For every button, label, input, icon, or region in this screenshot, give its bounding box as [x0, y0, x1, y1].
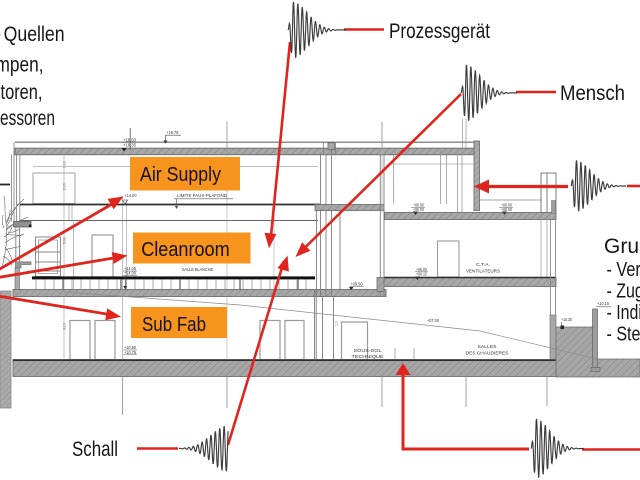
svg-text:- Verkehr: - Verkehr	[607, 259, 640, 281]
svg-text:+10.30: +10.30	[561, 317, 573, 322]
svg-text:toren,: toren,	[1, 80, 43, 104]
svg-text:mpen,: mpen,	[0, 53, 44, 77]
svg-text:+18.78: +18.78	[166, 130, 179, 135]
svg-text:essoren: essoren	[0, 106, 55, 130]
svg-text:Grundla: Grundla	[604, 235, 640, 258]
svg-text:+18.35: +18.35	[123, 142, 137, 147]
svg-text:+06.15: +06.15	[416, 271, 428, 276]
svg-text:3.10: 3.10	[63, 323, 67, 330]
svg-text:- Indirekt: - Indirekt	[607, 302, 640, 324]
svg-text:- Steuerung: - Steuerung	[607, 324, 640, 346]
svg-text:DES CHAUDIERES: DES CHAUDIERES	[466, 351, 509, 356]
svg-text:SALLES: SALLES	[478, 344, 497, 349]
svg-text:1.0: 1.0	[335, 321, 339, 326]
svg-text:Prozessgerät: Prozessgerät	[389, 19, 490, 43]
svg-text:+07.00: +07.00	[427, 318, 440, 323]
svg-text:Air Supply: Air Supply	[140, 163, 222, 186]
svg-text:+06.00: +06.00	[501, 207, 513, 212]
svg-text:LIMITE FAUX-PLAFOND: LIMITE FAUX-PLAFOND	[177, 193, 227, 198]
svg-text:+06.00: +06.00	[413, 207, 425, 212]
svg-text:Cleanroom: Cleanroom	[141, 238, 230, 261]
svg-text:2.00: 2.00	[63, 183, 67, 190]
svg-text:SOUS-SOL: SOUS-SOL	[354, 348, 383, 353]
svg-text:e: e	[0, 22, 1, 46]
svg-text:+14.00: +14.00	[124, 271, 137, 276]
svg-text:7.10: 7.10	[63, 161, 67, 168]
svg-text:C.T.A.: C.T.A.	[476, 262, 490, 267]
svg-text:+10.75: +10.75	[124, 350, 137, 355]
svg-text:Mensch: Mensch	[560, 81, 625, 105]
svg-text:TECHNIQUE: TECHNIQUE	[352, 354, 384, 359]
svg-text:+14.00: +14.00	[125, 193, 138, 198]
svg-text:Sub Fab: Sub Fab	[142, 313, 206, 336]
svg-text:- Zugang: - Zugang	[607, 281, 640, 303]
svg-text:+09.50: +09.50	[351, 282, 364, 287]
svg-text:Quellen: Quellen	[4, 22, 65, 46]
svg-text:VENTILATEURS: VENTILATEURS	[466, 269, 500, 274]
svg-text:Schall: Schall	[72, 437, 118, 461]
svg-text:SALLE BLANCHE: SALLE BLANCHE	[182, 267, 213, 272]
svg-text:5.60: 5.60	[63, 237, 67, 244]
